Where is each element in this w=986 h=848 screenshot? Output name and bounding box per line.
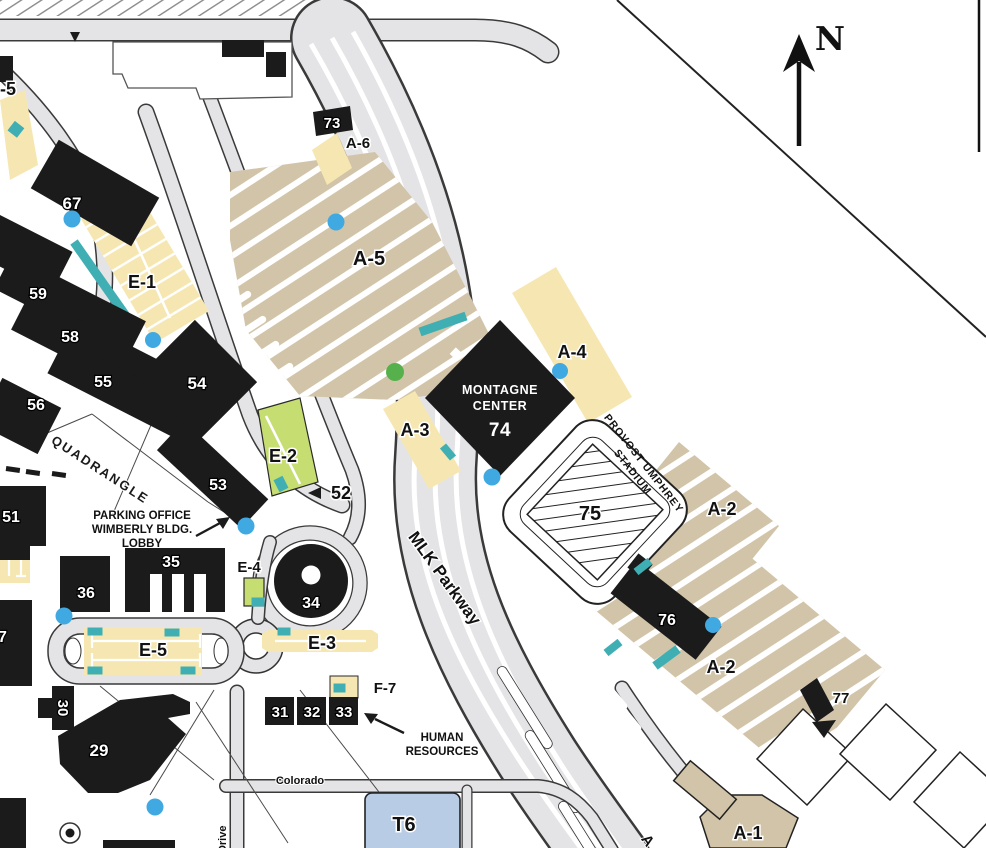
label-christopher-drive: Christopher Drive [217,826,229,848]
blue-marker [552,363,568,379]
north-label: N [815,19,845,58]
label-lot-f7: F-7 [374,680,397,697]
label-parking-office-3: LOBBY [122,538,163,550]
label-lot-a2-lower: A-2 [706,657,735,677]
label-lot-a3: A-3 [400,420,429,440]
blue-marker [484,469,501,486]
blue-marker [145,332,161,348]
blue-marker [328,214,345,231]
label-building-77: 77 [833,690,850,707]
label-lot-e5: E-5 [139,640,167,660]
label-building-55: 55 [94,374,112,391]
label-building-67: 67 [63,194,82,213]
label-lot-e3: E-3 [308,633,336,653]
label-building-31: 31 [272,704,289,721]
label-building-74: 74 [489,420,511,441]
label-building-36: 36 [77,585,95,602]
label-lot-a1: A-1 [733,823,762,843]
label-building-51: 51 [2,509,20,526]
label-montagne-line2: CENTER [473,399,527,413]
label-parking-office-2: WIMBERLY BLDG. [92,524,192,536]
label-building-33: 33 [336,704,353,721]
label-building-53: 53 [209,477,227,494]
campus-map: 67 59 58 55 56 54 53 51 37 36 35 34 30 2… [0,0,986,848]
label-lot-a4: A-4 [557,342,586,362]
label-building-32: 32 [304,704,321,721]
label-building-73: 73 [324,115,341,132]
label-human-resources-2: RESOURCES [406,746,479,758]
blue-marker [64,211,81,228]
label-building-34: 34 [302,595,320,612]
label-lot-e4: E-4 [237,559,261,576]
label-building-52: 52 [331,483,351,503]
label-lot-a5: A-5 [353,248,385,270]
label-lot-a6: A-6 [346,135,370,152]
label-building-59: 59 [29,286,47,303]
label-building-56: 56 [27,397,45,414]
label-lot-e1: E-1 [128,272,156,292]
label-building-58: 58 [61,329,79,346]
label-colorado: Colorado [276,775,325,787]
blue-marker [705,617,721,633]
building-36 [60,556,110,612]
hatched-parking-area [0,0,345,16]
label-building-t6: T6 [392,814,415,836]
blue-marker [238,518,255,535]
label-montagne-line1: MONTAGNE [462,383,538,397]
label-building-29: 29 [90,741,109,760]
label-building-54: 54 [188,374,207,393]
green-marker [386,363,404,381]
label-parking-office-1: PARKING OFFICE [93,510,191,522]
label-building-35: 35 [162,554,180,571]
blue-marker [56,608,73,625]
label-building-37-partial: 37 [0,629,7,646]
label-building-30: 30 [54,700,71,717]
label-building-75: 75 [579,503,601,525]
campus-map-canvas: 67 59 58 55 56 54 53 51 37 36 35 34 30 2… [0,0,986,848]
blue-marker [147,799,164,816]
label-human-resources-1: HUMAN [421,732,464,744]
label-building-76: 76 [658,612,676,629]
label-lot-a2-upper: A-2 [707,499,736,519]
label-lot-e2: E-2 [269,446,297,466]
label-lot-partial-5: -5 [0,79,16,99]
